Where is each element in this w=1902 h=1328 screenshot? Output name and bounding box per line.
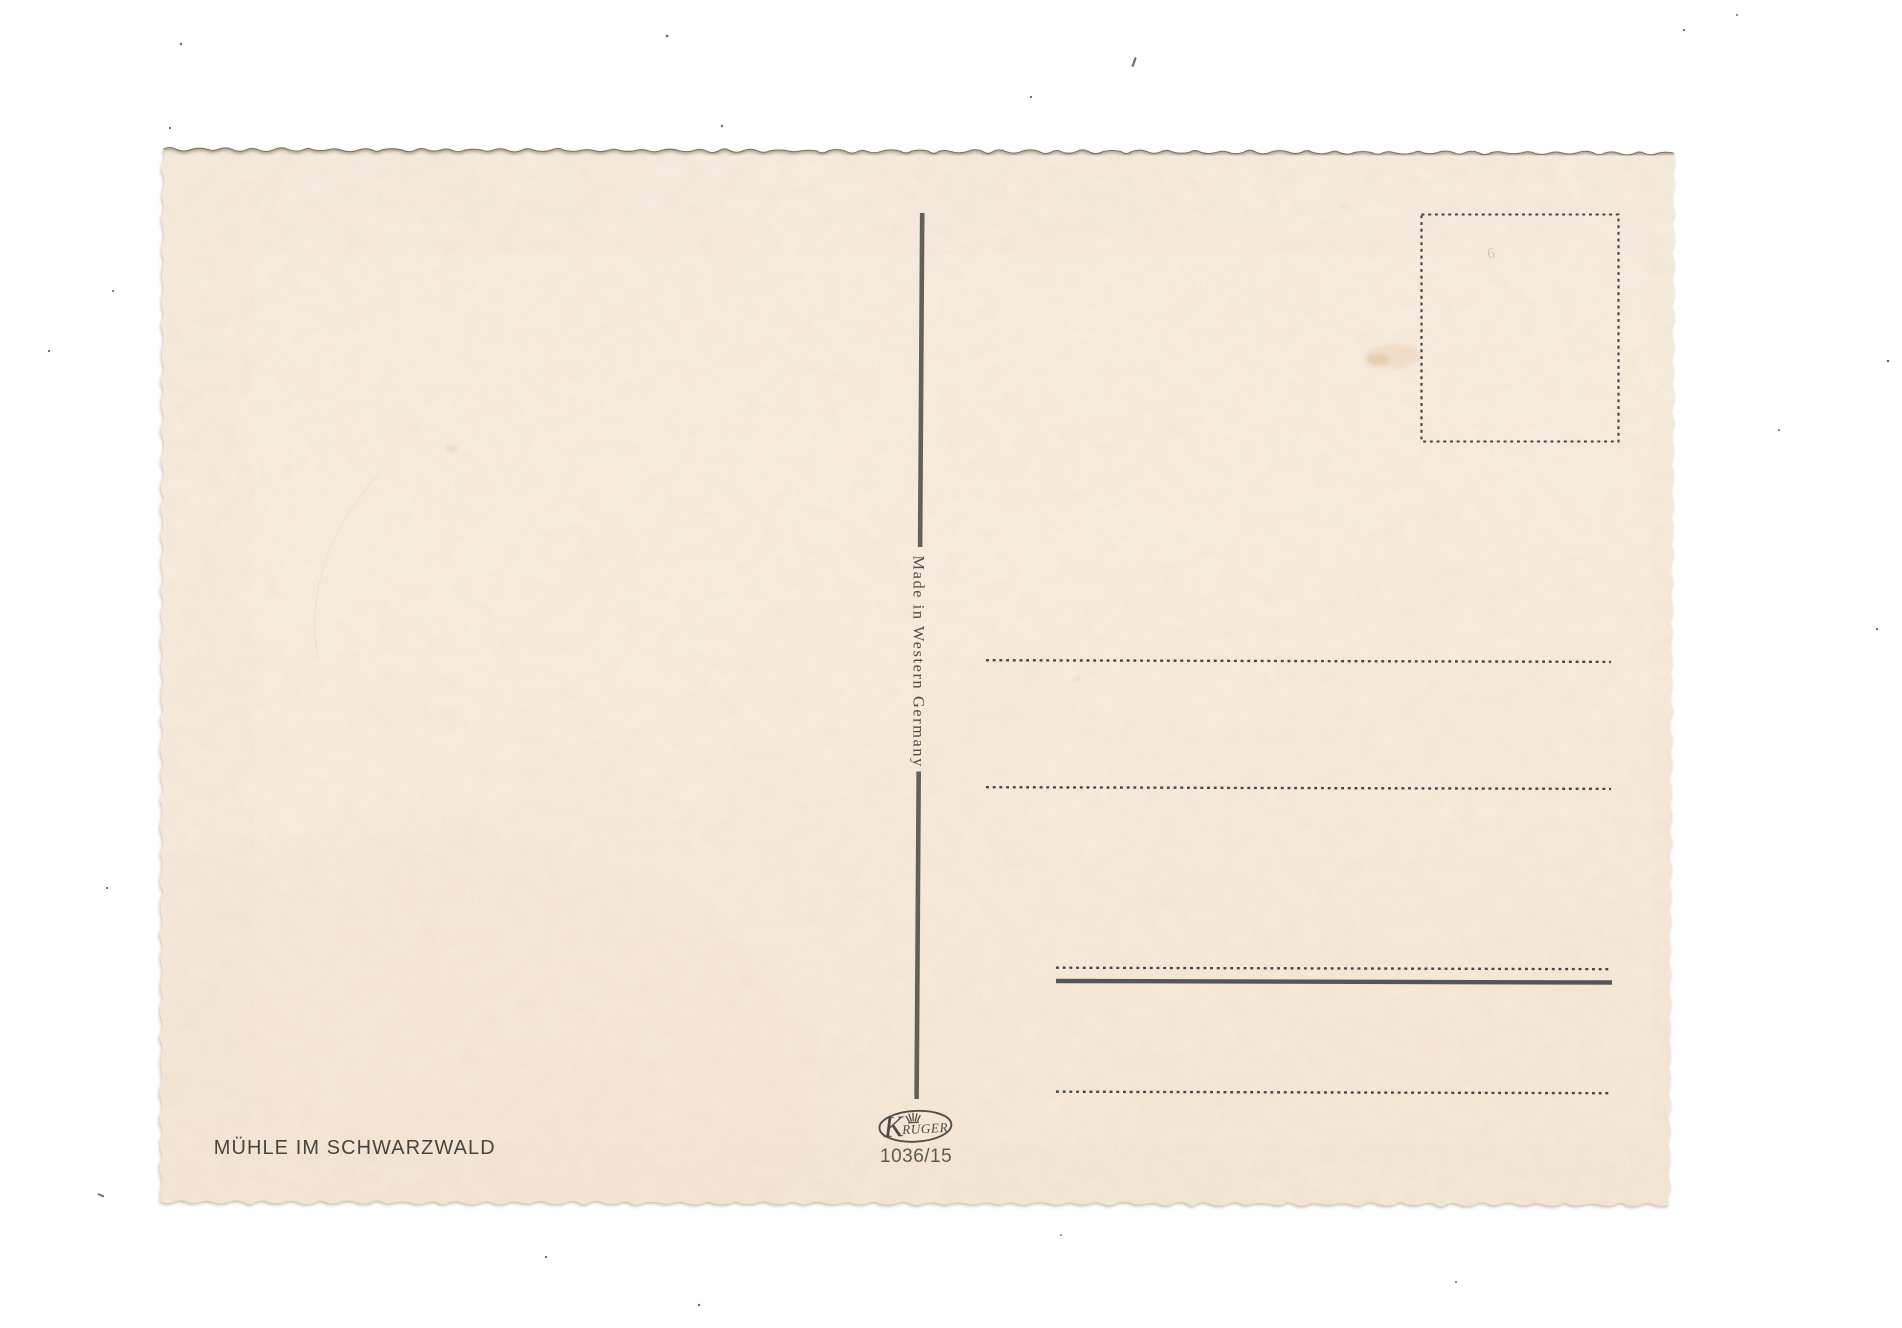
svg-text:MÜHLE IM SCHWARZWALD: MÜHLE IM SCHWARZWALD [214,1137,496,1159]
svg-text:1036/15: 1036/15 [880,1146,952,1167]
svg-text:RUGER: RUGER [901,1120,949,1137]
svg-text:Made in Western Germany: Made in Western Germany [910,556,929,768]
